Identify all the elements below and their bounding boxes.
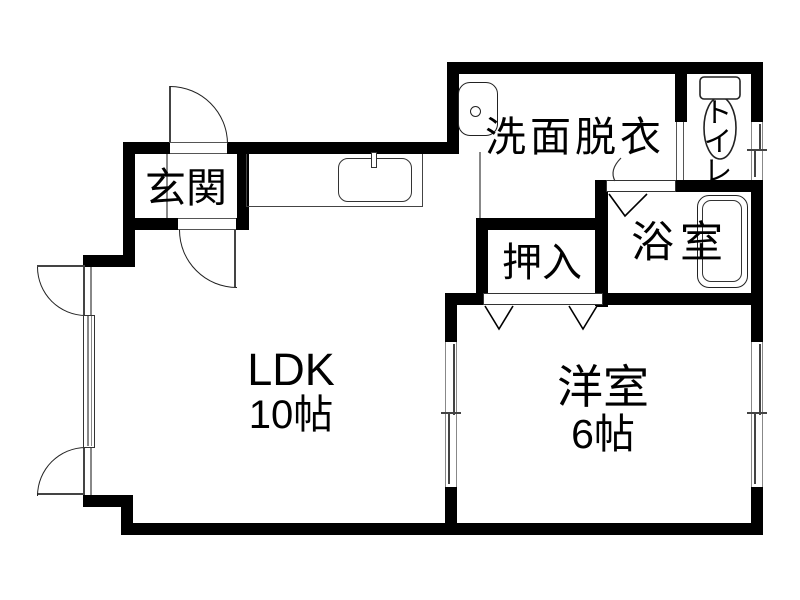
room-label-closet: 押入 [487, 241, 597, 286]
closet-folding-door-mark [485, 306, 513, 329]
closet-folding-door-mark [569, 306, 597, 329]
plan-symbols-overlay [0, 0, 800, 600]
room-label-ldk: LDK 10帖 [171, 346, 411, 438]
ldk-size: 10帖 [171, 393, 411, 438]
floorplan-canvas: 玄関 洗面脱衣 トイレ 浴室 押入 LDK 10帖 洋室 6帖 [0, 0, 800, 600]
room-label-bathroom: 浴室 [597, 219, 763, 267]
western-size: 6帖 [482, 412, 724, 457]
room-label-toilet: トイレ [699, 85, 731, 195]
bath-door-leader-line [613, 158, 621, 181]
bath-folding-door-mark [609, 194, 647, 216]
room-label-western: 洋室 6帖 [482, 363, 724, 457]
room-label-washroom: 洗面脱衣 [470, 115, 680, 161]
room-label-genkan: 玄関 [125, 166, 247, 212]
western-name: 洋室 [482, 363, 724, 412]
ldk-name: LDK [171, 346, 411, 393]
